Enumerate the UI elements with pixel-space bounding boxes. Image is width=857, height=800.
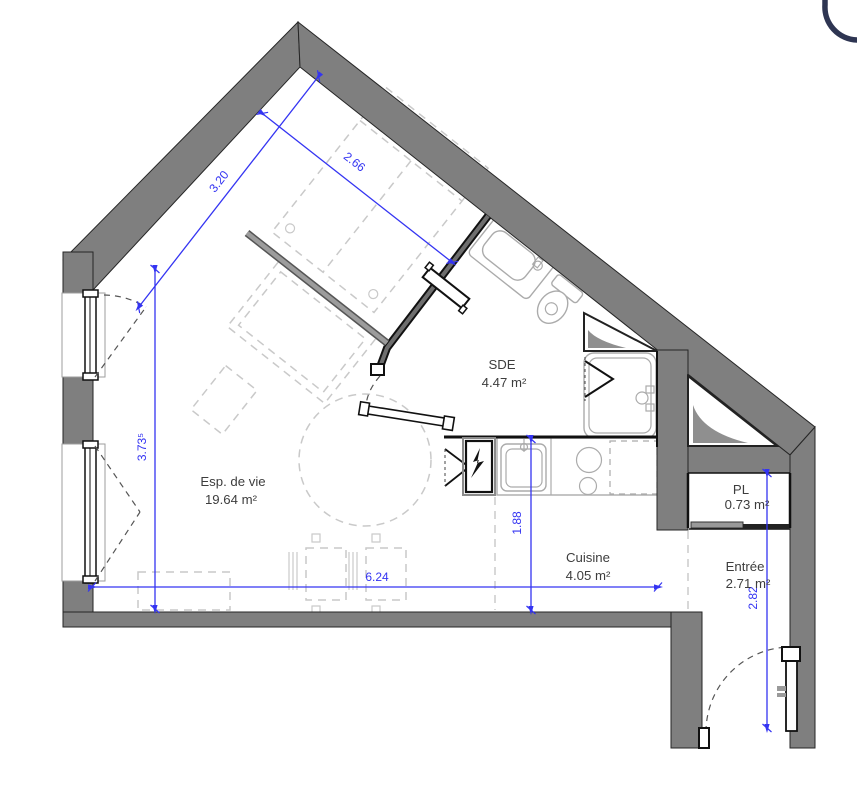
nightstand [191,366,257,435]
pl-sliding-door [689,522,790,529]
wall-left [63,377,93,444]
room-label-pl: PL [733,482,749,497]
partial-circle-logo [825,0,857,40]
dim-text-left-wall: 3.73⁵ [135,433,149,461]
partition-glazed-bar [247,233,387,343]
dim-text-left-slope: 3.20 [206,168,232,195]
room-area-cuisine: 4.05 m² [566,568,611,583]
wall-roof-diagonal [298,22,815,455]
kitchen-counter [497,438,659,495]
cabinet [138,572,230,610]
sde-door [358,376,454,430]
floor-plan-drawing: 3.20 2.66 3.73⁵ 1.88 6.24 2.82 Esp. de v… [0,0,857,800]
room-area-living: 19.64 m² [205,492,258,507]
entry-door [699,647,800,748]
shower [584,353,656,438]
room-label-sde: SDE [488,357,515,372]
walls-layer [63,22,815,748]
room-label-cuisine: Cuisine [566,550,610,565]
electrical-panel [463,438,495,495]
room-area-entree: 2.71 m² [726,576,771,591]
window-french-1 [62,290,146,380]
window-french-2 [62,441,140,583]
room-label-entree: Entrée [726,559,765,574]
bed-single [227,261,376,404]
chair [289,534,346,614]
wall-kitchen-entry [657,350,688,530]
room-area-pl: 0.73 m² [725,497,770,512]
dim-text-kitchen-depth: 1.88 [510,511,524,535]
dim-text-bottom-width: 6.24 [365,570,389,584]
wall-bottom [63,612,688,627]
room-label-living: Esp. de vie [200,474,265,489]
room-area-sde: 4.47 m² [482,375,527,390]
wall-entry-left [671,612,702,748]
partition-living-sde [371,216,488,375]
wall-left [63,252,93,293]
dim-text-upper-slope: 2.66 [341,149,368,175]
floor-plan-page: 3.20 2.66 3.73⁵ 1.88 6.24 2.82 Esp. de v… [0,0,857,800]
